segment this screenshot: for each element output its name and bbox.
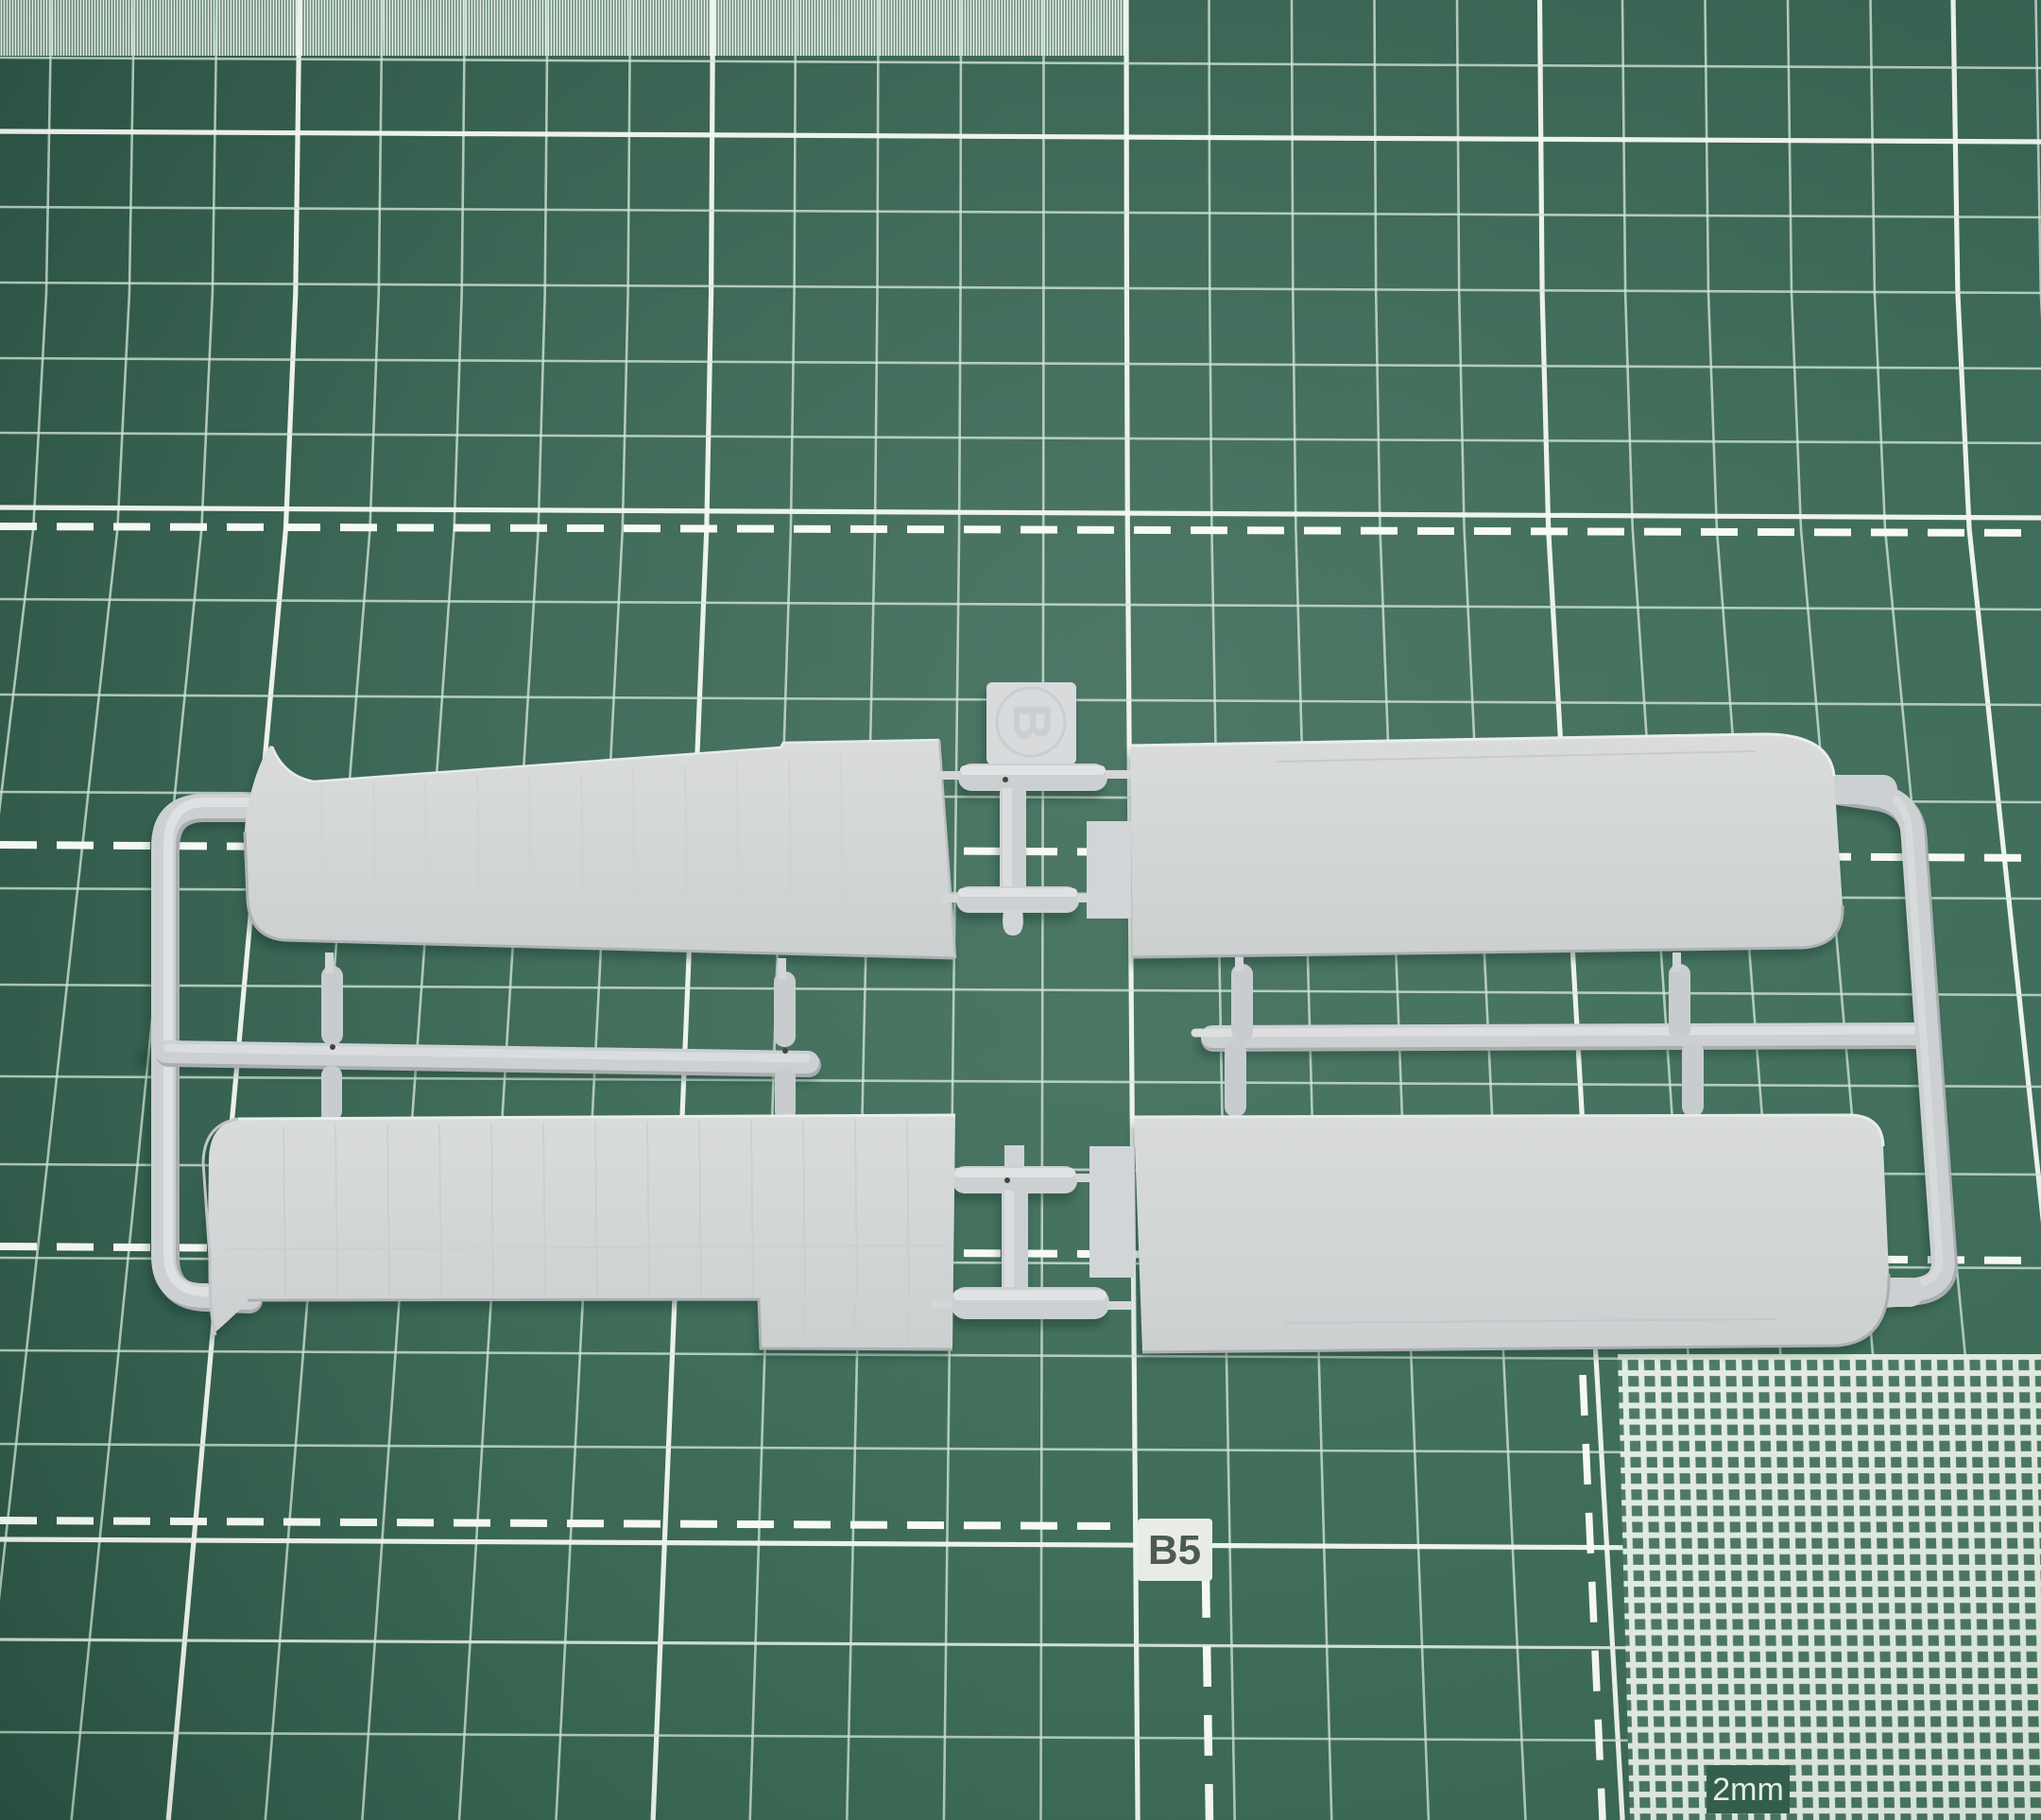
svg-text:B: B	[1003, 703, 1062, 741]
